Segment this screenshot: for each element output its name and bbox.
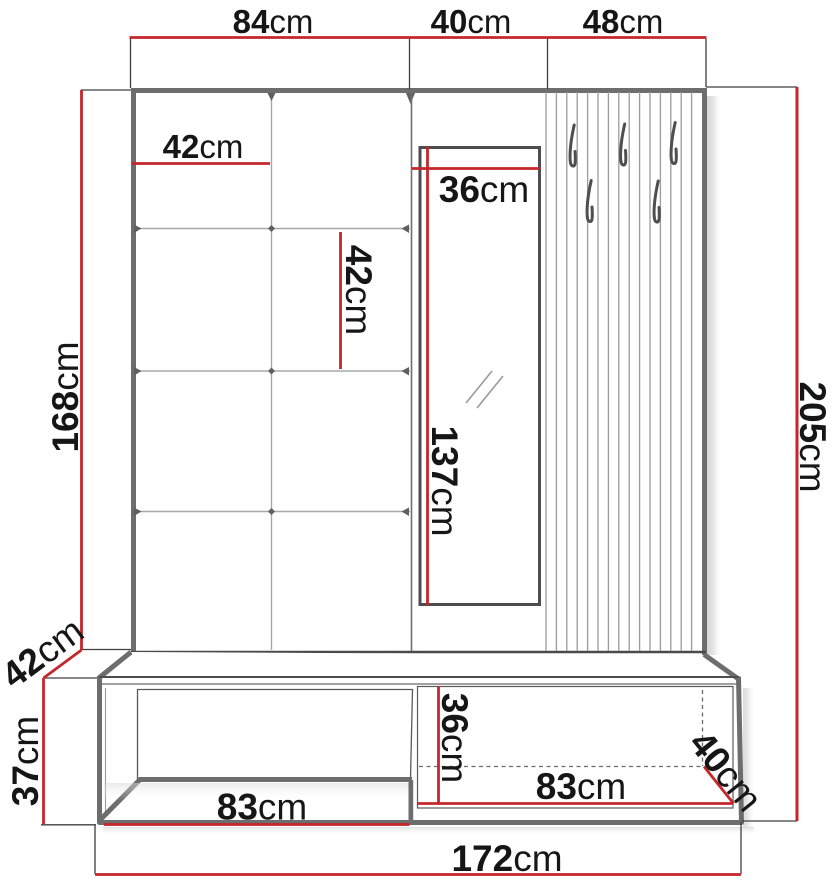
svg-text:36cm: 36cm <box>434 693 475 783</box>
svg-text:168cm: 168cm <box>45 341 86 452</box>
svg-text:205cm: 205cm <box>792 381 833 492</box>
svg-text:172cm: 172cm <box>451 838 562 879</box>
svg-text:83cm: 83cm <box>217 787 307 828</box>
svg-text:40cm: 40cm <box>431 3 512 40</box>
svg-text:48cm: 48cm <box>583 3 664 40</box>
svg-text:84cm: 84cm <box>233 3 314 40</box>
svg-text:37cm: 37cm <box>5 716 46 806</box>
svg-text:83cm: 83cm <box>536 766 626 807</box>
svg-text:36cm: 36cm <box>439 169 529 210</box>
svg-text:42cm: 42cm <box>338 245 379 335</box>
svg-text:137cm: 137cm <box>424 425 465 536</box>
svg-text:42cm: 42cm <box>163 128 244 165</box>
